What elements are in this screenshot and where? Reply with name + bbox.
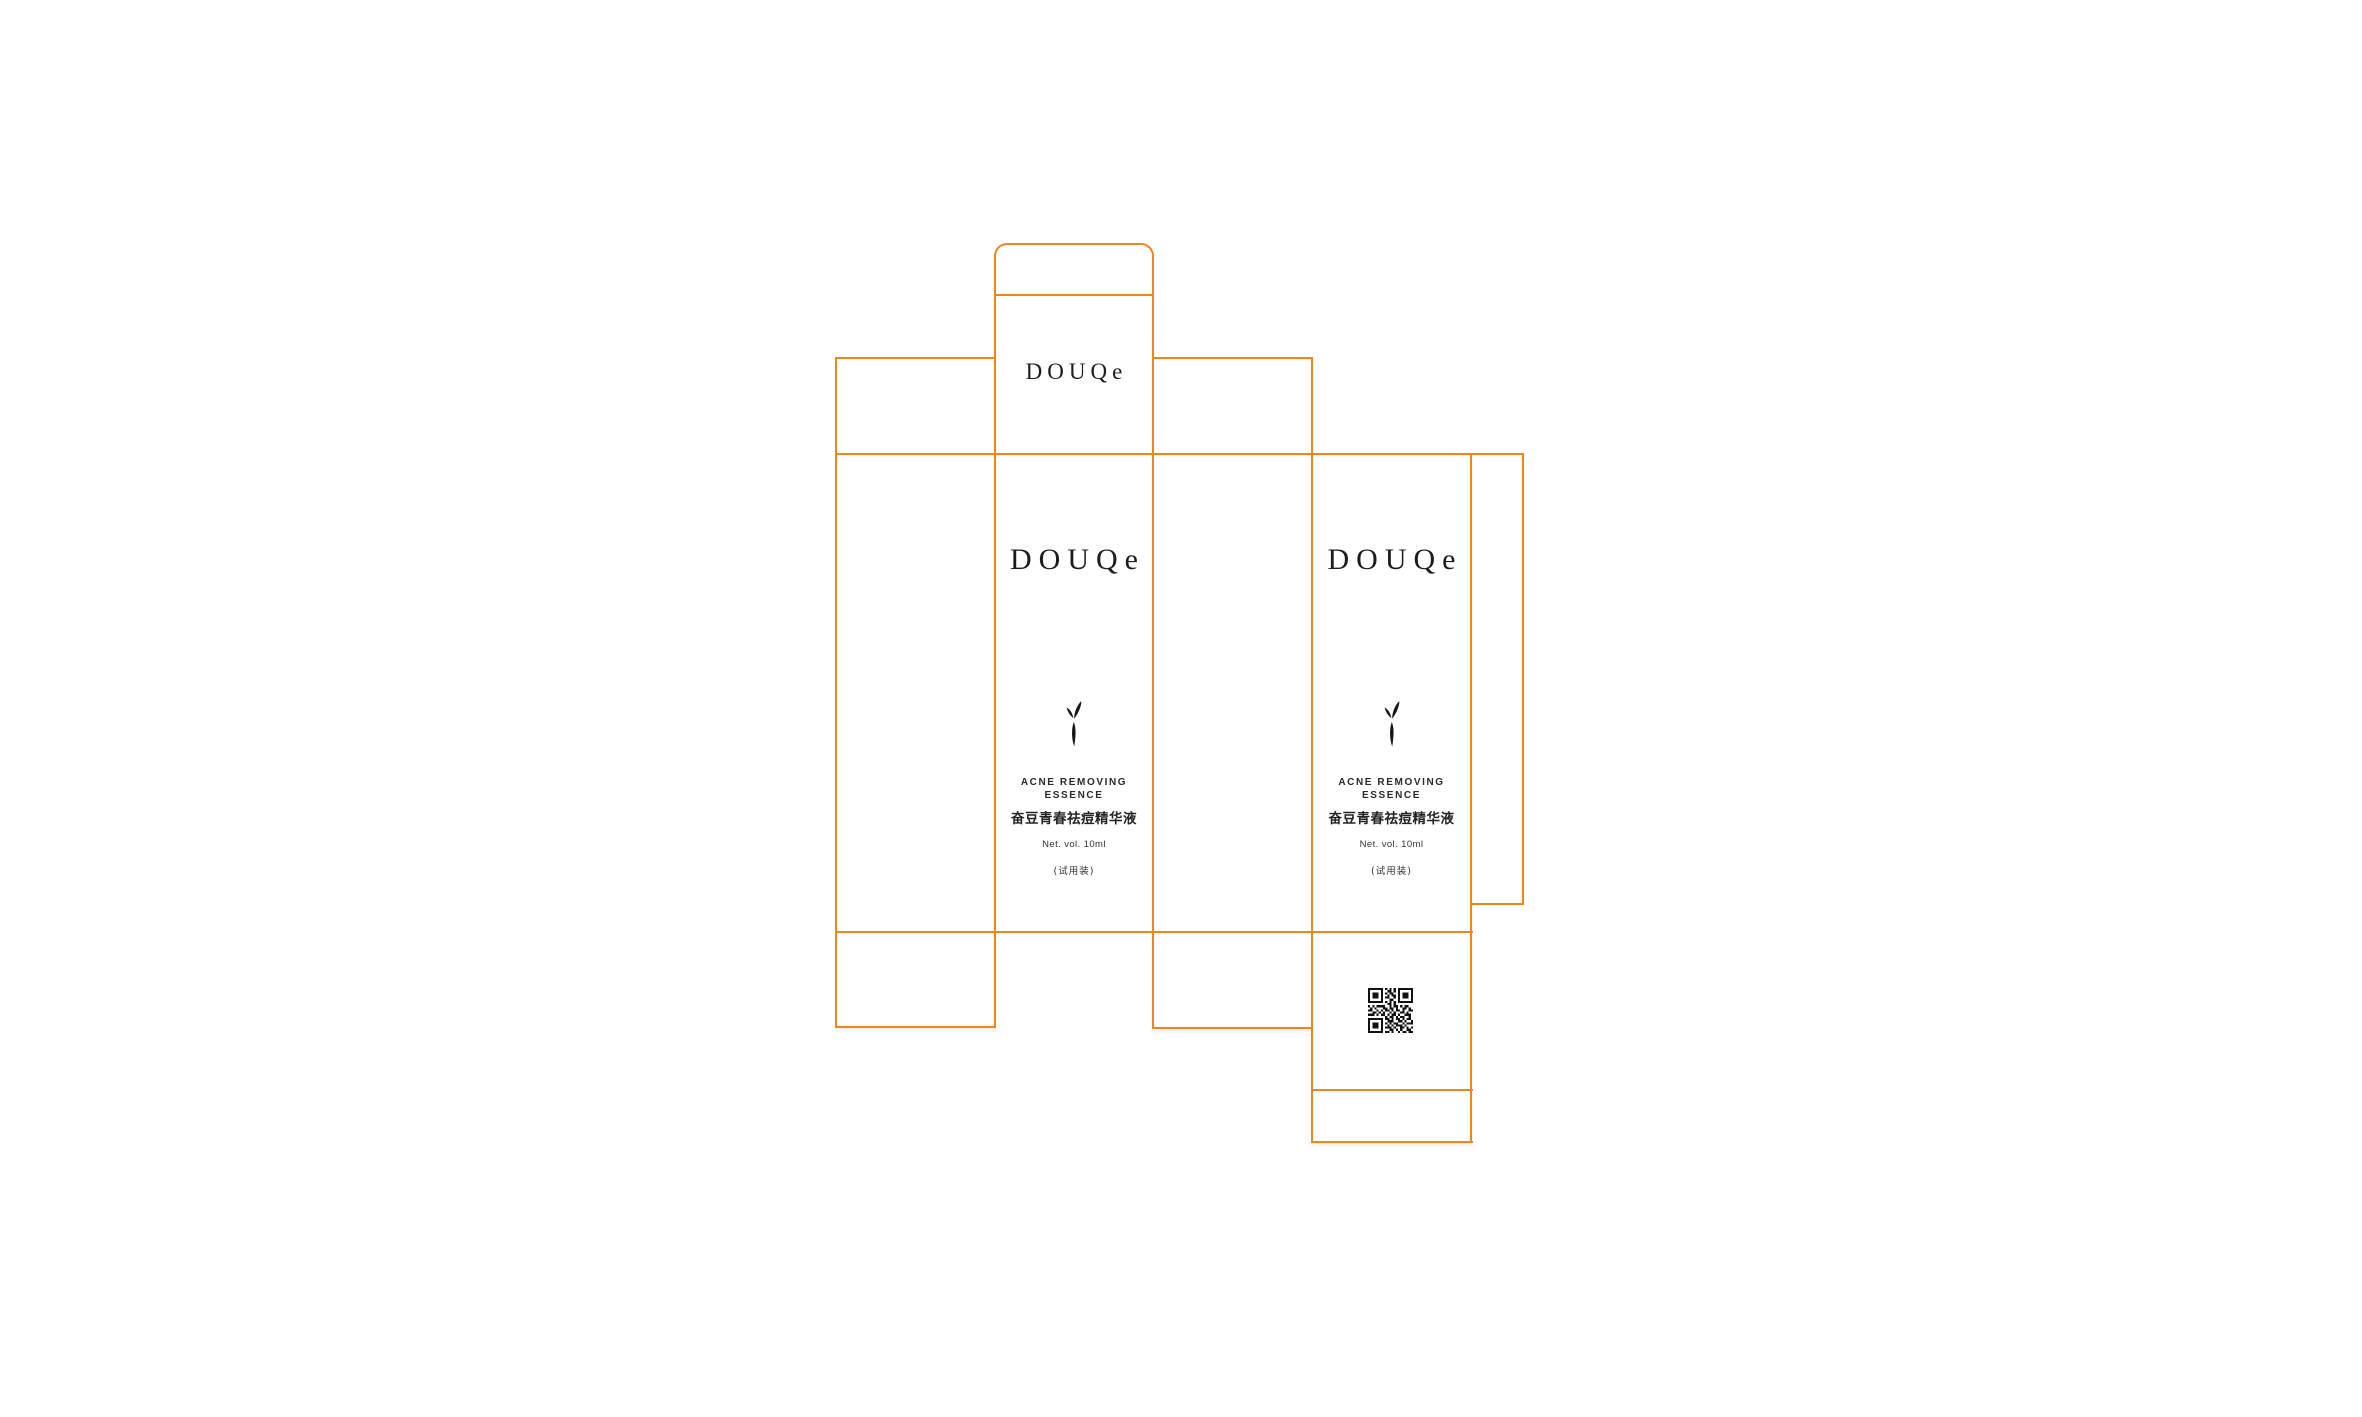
net-volume: Net. vol. 10ml <box>994 839 1154 850</box>
product-tagline: ACNE REMOVINGESSENCE <box>994 777 1154 802</box>
qr-flap-fold-line <box>1311 1089 1473 1091</box>
product-name-cn: 奋豆青春祛痘精华液 <box>994 811 1154 827</box>
product-tagline: ACNE REMOVINGESSENCE <box>1311 777 1472 802</box>
tagline-line-1: ACNE REMOVING <box>1021 777 1127 788</box>
tagline-line-2: ESSENCE <box>1045 790 1104 801</box>
product-name-cn: 奋豆青春祛痘精华液 <box>1311 811 1472 827</box>
tuck-fold-line <box>994 294 1154 296</box>
dust-flap-right-top-line <box>1152 357 1313 359</box>
glue-flap-right-cut-line <box>1522 453 1524 905</box>
tagline-line-2: ESSENCE <box>1362 790 1421 801</box>
trial-pack-label: (试用装) <box>1311 866 1472 877</box>
bottom-flap-left-edge-line <box>835 1026 996 1028</box>
brand-wordmark: DOUQe <box>994 545 1154 575</box>
leaf-sprig-icon <box>1311 701 1472 753</box>
back-panel-artwork: DOUQe ACNE REMOVINGESSENCE 奋豆青春祛痘精华液 Net… <box>1311 453 1472 933</box>
glue-flap-bottom-line <box>1470 903 1524 905</box>
packaging-dieline-canvas: DOUQe DOUQe ACNE REMOVINGESSENCE 奋豆青春祛痘精… <box>0 0 2362 1417</box>
tagline-line-1: ACNE REMOVING <box>1338 777 1444 788</box>
brand-wordmark: DOUQe <box>1311 545 1472 575</box>
qr-code-icon <box>1368 988 1413 1033</box>
left-outer-cut-line <box>835 357 837 1028</box>
bottom-flap-right-edge-line <box>1152 1027 1313 1029</box>
lid-brand-wordmark: DOUQe <box>994 360 1154 384</box>
qr-tuck-bottom-line <box>1311 1141 1473 1143</box>
front-panel-artwork: DOUQe ACNE REMOVINGESSENCE 奋豆青春祛痘精华液 Net… <box>994 453 1154 933</box>
net-volume: Net. vol. 10ml <box>1311 839 1472 850</box>
tuck-flap-outline <box>994 243 1154 296</box>
trial-pack-label: (试用装) <box>994 866 1154 877</box>
leaf-sprig-icon <box>994 701 1154 753</box>
dust-flap-left-top-line <box>835 357 996 359</box>
